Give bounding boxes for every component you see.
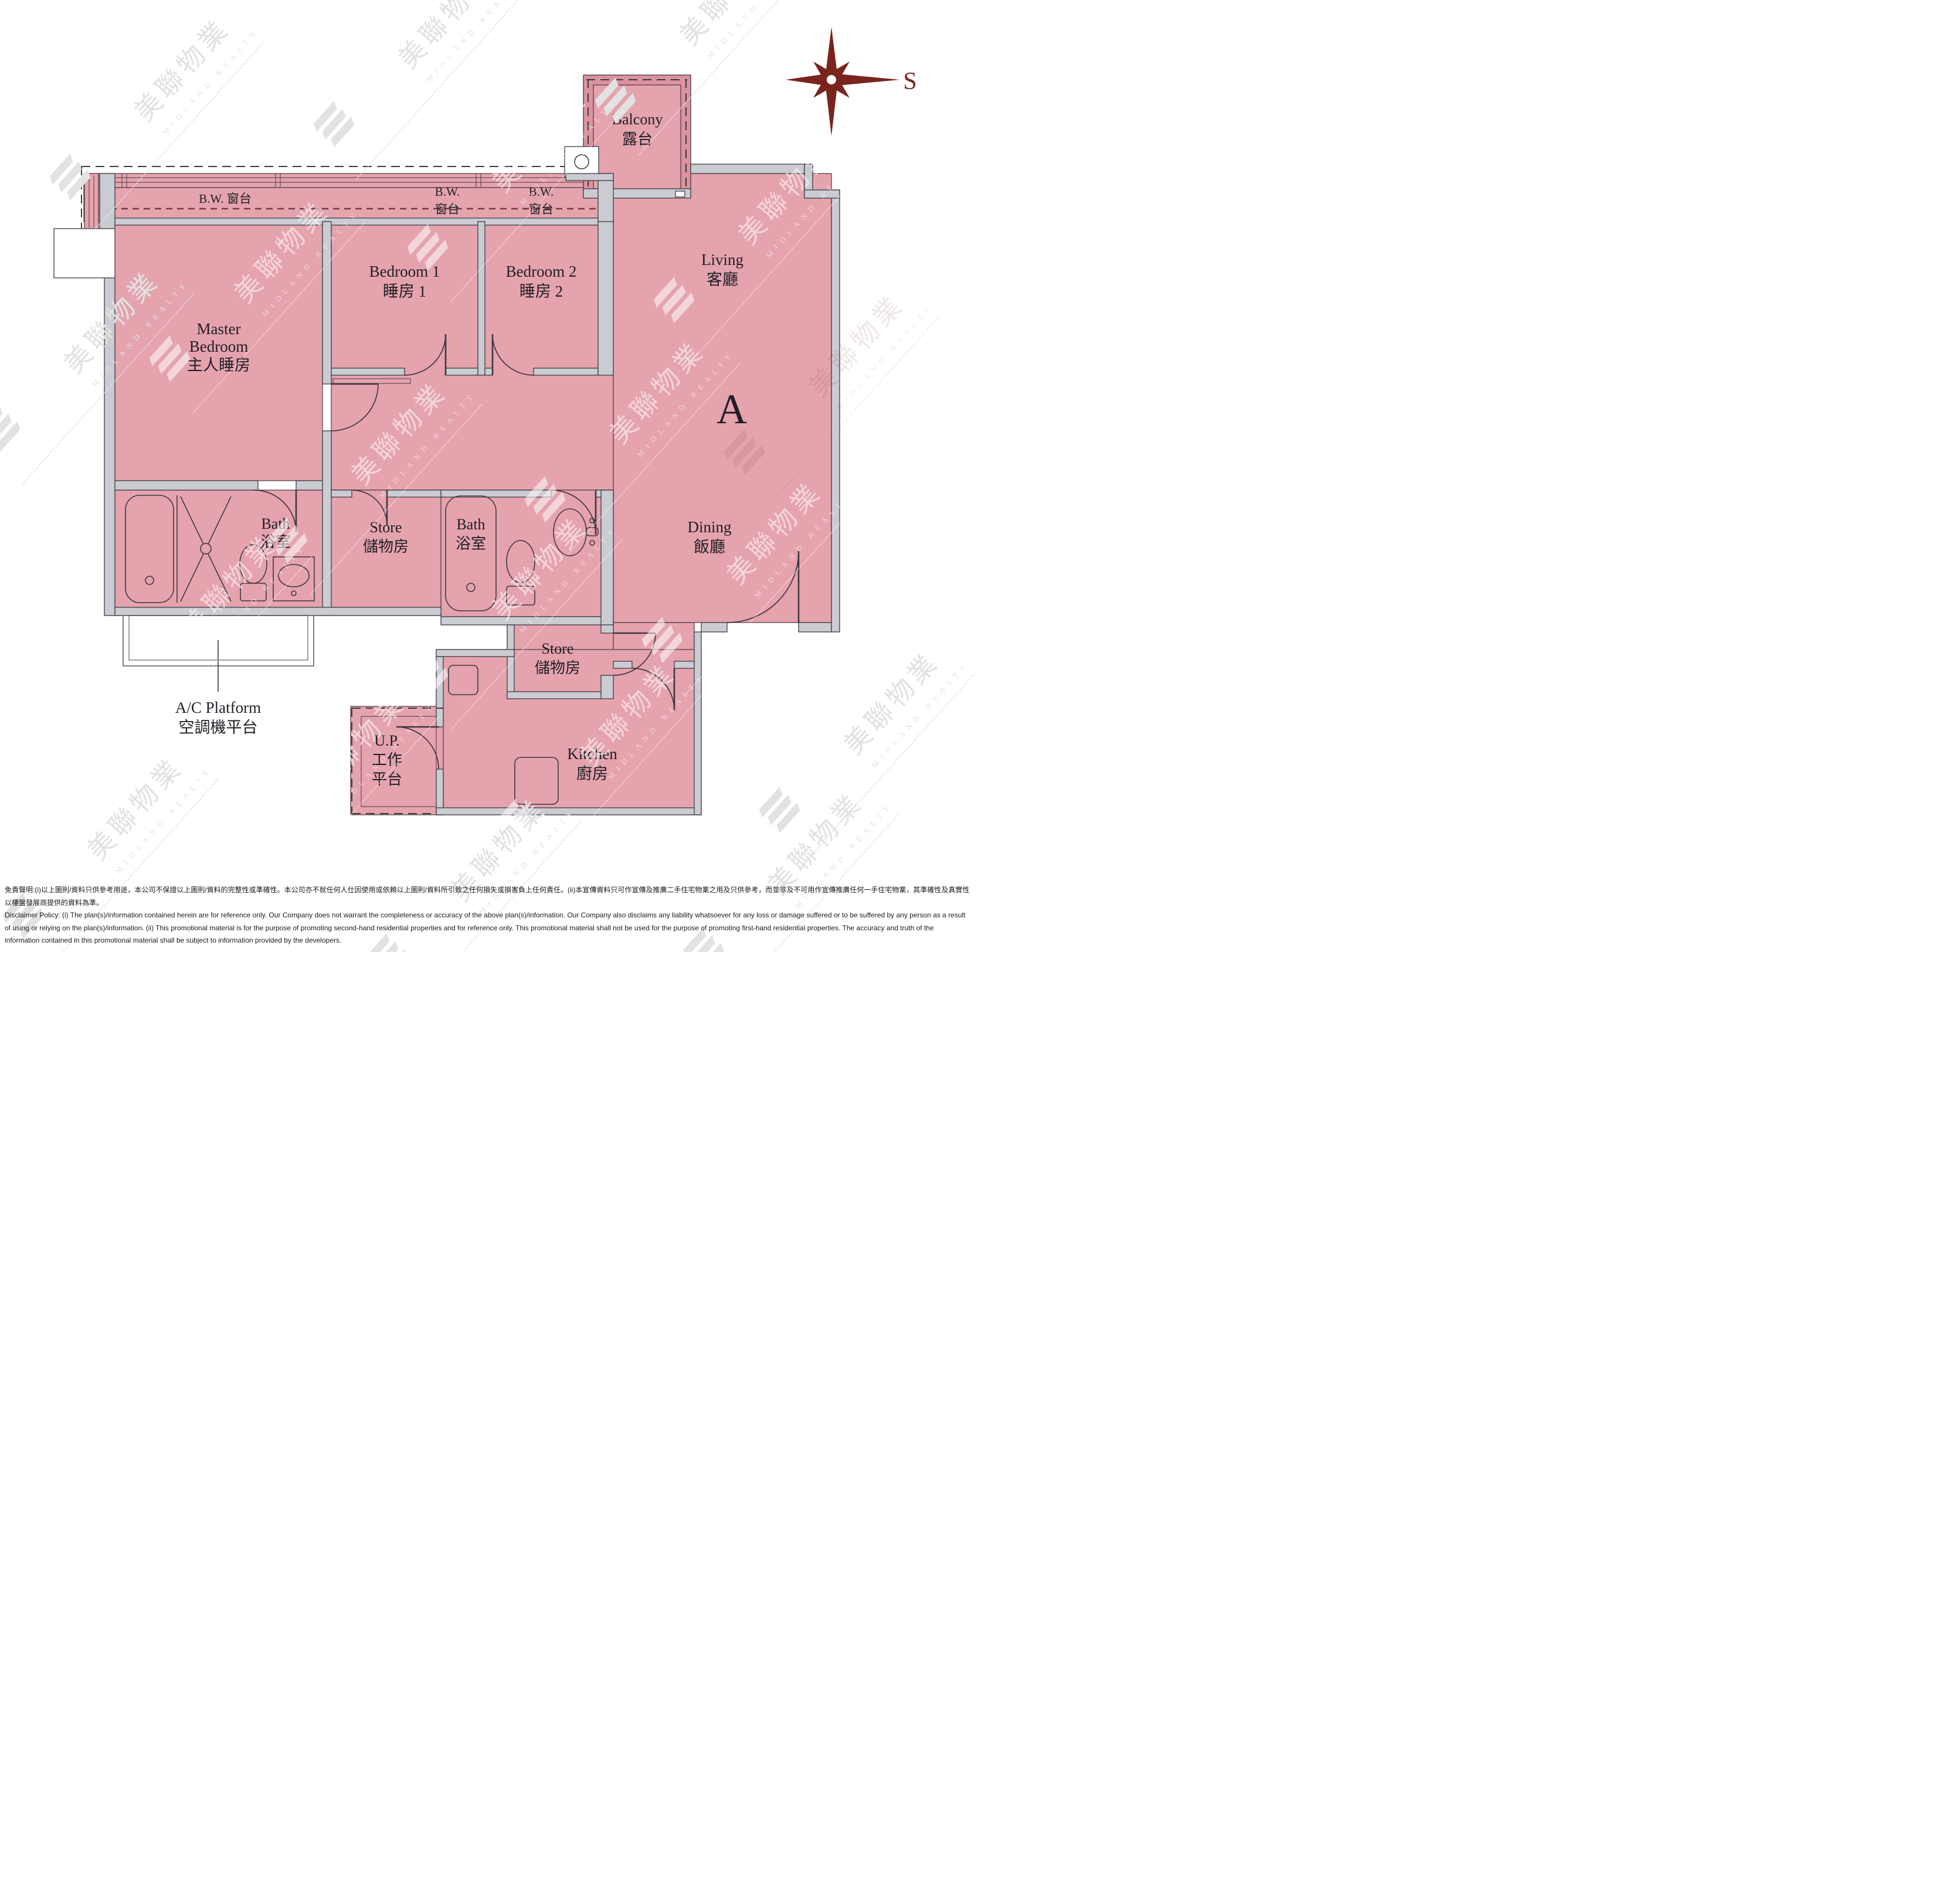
- floor-plan: Master Bedroom 主人睡房 Bedroom 1 睡房 1 Bedro…: [54, 75, 840, 815]
- master-bedroom-label: Master: [197, 320, 241, 338]
- midland-logo-icon: [94, 669, 140, 716]
- dining-label: Dining: [687, 518, 731, 536]
- exterior-notch: [54, 229, 115, 278]
- svg-text:窗台: 窗台: [435, 202, 460, 216]
- store2-label: Store: [542, 640, 574, 657]
- living-label: Living: [701, 251, 743, 268]
- svg-text:空調機平台: 空調機平台: [179, 719, 258, 736]
- svg-text:睡房 1: 睡房 1: [383, 283, 426, 300]
- compass-south-label: S: [903, 68, 916, 95]
- midland-logo-icon: [223, 828, 269, 874]
- midland-watermark: 美聯物業MIDLAND REALTY: [305, 0, 532, 179]
- disclaimer-en: Disclaimer Policy: (i) The plan(s)/infor…: [5, 909, 970, 947]
- bath2-label: Bath: [456, 516, 485, 533]
- svg-text:Bedroom: Bedroom: [189, 338, 249, 355]
- svg-text:客廳: 客廳: [707, 271, 738, 288]
- svg-text:主人睡房: 主人睡房: [187, 356, 250, 374]
- midland-logo-icon: [756, 787, 803, 833]
- svg-text:平台: 平台: [372, 771, 402, 788]
- bedroom2-label: Bedroom 2: [506, 263, 577, 280]
- midland-logo-icon: [311, 101, 357, 147]
- svg-text:儲物房: 儲物房: [535, 659, 580, 676]
- floor-plan-canvas: Master Bedroom 主人睡房 Bedroom 1 睡房 1 Bedro…: [0, 0, 975, 952]
- bw-label-bed1: B.W.: [435, 185, 460, 199]
- disclaimer: 免責聲明:(i)以上圖則/資料只供參考用途，本公司不保證以上圖則/資料的完整性或…: [5, 884, 970, 947]
- ac-platform: [123, 616, 314, 692]
- bw-label-master: B.W. 窗台: [199, 192, 252, 206]
- svg-text:儲物房: 儲物房: [363, 538, 409, 555]
- compass-star-icon: [786, 27, 899, 136]
- ac-platform-label: A/C Platform: [175, 699, 261, 716]
- store1-label: Store: [370, 519, 402, 536]
- disclaimer-zh: 免責聲明:(i)以上圖則/資料只供參考用途，本公司不保證以上圖則/資料的完整性或…: [5, 884, 970, 909]
- svg-text:窗台: 窗台: [529, 202, 554, 216]
- midland-logo-icon: [0, 406, 23, 452]
- svg-text:睡房 2: 睡房 2: [519, 283, 563, 300]
- unit-letter: A: [717, 386, 747, 433]
- compass: S: [786, 27, 917, 136]
- svg-text:露台: 露台: [622, 131, 653, 148]
- svg-text:飯廳: 飯廳: [694, 538, 725, 556]
- svg-text:浴室: 浴室: [456, 535, 486, 552]
